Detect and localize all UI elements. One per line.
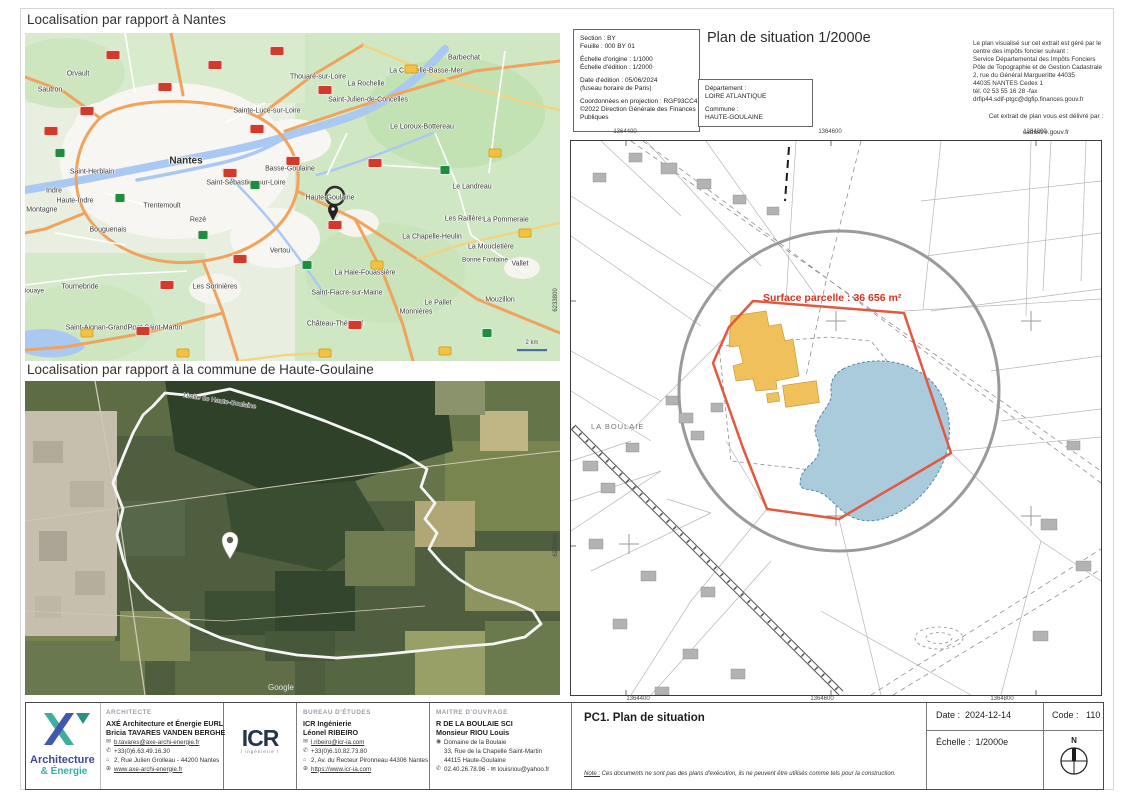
icr-logo: ICR / ingénierie / (226, 727, 294, 754)
plan-sheet: { "titles": { "nantes": "Localisation pa… (0, 0, 1123, 794)
text-line: (fuseau horaire de Paris) (580, 85, 693, 93)
date-row: Date : 2024-12-14 (936, 710, 1011, 720)
route-shield-icon (482, 328, 493, 338)
route-shield-icon (371, 261, 384, 270)
text-line: Département : (705, 85, 806, 93)
text-line: Le plan visualisé sur cet extrait est gé… (973, 40, 1119, 48)
contact-icon: ◉ (436, 739, 444, 745)
text-line: centre des impôts foncier suivant : (973, 48, 1119, 56)
contact-row: ✆+33(0)6.10.82.73.80 (303, 748, 427, 756)
route-shield-icon (250, 124, 265, 134)
route-shield-icon (80, 106, 95, 116)
commune-limit-dashes (785, 147, 789, 201)
route-shield-icon (319, 349, 332, 358)
nantes-map-title: Localisation par rapport à Nantes (27, 12, 226, 27)
text-line: Échelle d'origine : 1/1000 (580, 56, 693, 64)
route-shield-icon (519, 229, 532, 238)
bureau-heading: BUREAU D'ÉTUDES (303, 709, 427, 716)
axe-logo-line1: Architecture (30, 754, 98, 766)
contact-text: 33, Rue de la Chapelle Saint-Martin (444, 748, 542, 756)
route-shield-icon (136, 326, 151, 336)
route-shield-icon (328, 220, 343, 230)
text-line: tél. 02 53 55 16 28 -fax (973, 88, 1119, 96)
text-line: Commune : (705, 106, 806, 114)
text-line: drfip44.sdif-ptgc@dgfip.finances.gouv.fr (973, 96, 1119, 104)
code-label: Code : (1052, 710, 1079, 720)
contact-text: +33(0)6.63.49.16.30 (114, 748, 170, 756)
date-value: 2024-12-14 (965, 710, 1011, 720)
route-shield-icon (489, 149, 502, 158)
divider (926, 703, 927, 789)
contact-text: 2, Av. du Recteur Pironneau 44306 Nantes (311, 757, 428, 765)
text-line: Pôle de Topographie et de Gestion Cadast… (973, 64, 1119, 72)
coord-top-3: 1364800 (1023, 129, 1046, 135)
doc-note: Note : Ces documents ne sont pas des pla… (584, 771, 896, 777)
doc-title: PC1. Plan de situation (584, 712, 705, 724)
maitre-heading: MAITRE D'OUVRAGE (436, 709, 568, 716)
cadastre-map-graphic: Surface parcelle : 36 656 m² LA BOULAIE (571, 141, 1101, 695)
contact-text: 2, Rue Julien Grolleau - 44200 Nantes (114, 757, 219, 765)
nantes-map: OrvaultSautronThouaré-sur-LoireLa Rochel… (25, 33, 560, 361)
bureau-contacts: ✉l.ribeiro@icr-ia.com✆+33(0)6.10.82.73.8… (303, 739, 427, 774)
cadastre-notice: Le plan visualisé sur cet extrait est gé… (973, 40, 1119, 136)
architecte-heading: ARCHITECTE (106, 709, 221, 716)
route-shield-icon (55, 148, 66, 158)
contact-icon: ✆ (436, 766, 444, 772)
scale-label: Échelle : (936, 737, 971, 747)
architecte-contact-name: Bricia TAVARES VANDEN BERGHE (106, 728, 221, 737)
urban-area-left (25, 411, 117, 636)
text-line: 2, rue du Général Margueritte 44035 (973, 72, 1119, 80)
coord-left-2: 6233600 (553, 533, 559, 556)
contact-text: +33(0)6.10.82.73.80 (311, 748, 367, 756)
route-shield-icon (158, 82, 173, 92)
commune-info-box: Département :LOIRE ATLANTIQUECommune :HA… (698, 79, 813, 127)
text-line: Section : BY (580, 35, 693, 43)
north-arrow-icon: N (1056, 733, 1092, 788)
commune-map: Limite de Haute-Goulaine Google (25, 381, 560, 695)
maitre-contact-name: Monsieur RIOU Louis (436, 728, 568, 737)
contact-icon: ⌂ (303, 757, 311, 763)
text-line: ©2022 Direction Générale des Finances (580, 106, 693, 114)
contact-icon: ✆ (106, 748, 114, 754)
route-shield-icon (233, 254, 248, 264)
note-label: Note : (584, 771, 600, 777)
contact-icon: ⊕ (303, 766, 311, 772)
route-shield-icon (198, 230, 209, 240)
cadastre-info-box: Section : BYFeuille : 000 BY 01Échelle d… (573, 29, 700, 132)
contact-icon: ⊕ (106, 766, 114, 772)
map-attribution: Google (268, 683, 294, 692)
contact-row[interactable]: ⊕www.axe-archi-energie.fr (106, 766, 221, 774)
divider (100, 703, 101, 789)
route-shield-icon (270, 46, 285, 56)
axe-logo: Architecture & Énergie (30, 711, 98, 777)
plan-title: Plan de situation 1/2000e (707, 30, 871, 46)
code-value: 110 (1086, 710, 1100, 720)
contact-row: 33, Rue de la Chapelle Saint-Martin (436, 748, 568, 756)
text-line: Service Départemental des Impôts Foncier… (973, 56, 1119, 64)
architecte-company: AXÉ Architecture et Énergie EURL (106, 719, 221, 728)
contour-ellipse-inner (926, 633, 952, 644)
route-shield-icon (302, 260, 313, 270)
bureau-contact-name: Léonel RIBEIRO (303, 728, 427, 737)
route-shield-icon (106, 50, 121, 60)
bureau-cell: BUREAU D'ÉTUDES ICR Ingénierie Léonel RI… (303, 709, 427, 773)
route-shield-icon (81, 329, 94, 338)
coord-left-1: 6233800 (553, 288, 559, 311)
delivery-line: Cet extrait de plan vous est délivré par… (973, 113, 1119, 120)
axe-logo-line2: & Énergie (30, 766, 98, 777)
contact-text[interactable]: https://www.icr-ia.com (311, 766, 371, 774)
project-buildings (729, 311, 819, 407)
north-label: N (1071, 736, 1077, 745)
maitre-company: R DE LA BOULAIE SCI (436, 719, 568, 728)
text-line: HAUTE-GOULAINE (705, 114, 806, 122)
contact-row: ✆02.40.26.78.96 - ✉ louisriou@yahoo.fr (436, 766, 568, 774)
icr-logo-sub: / ingénierie / (226, 749, 294, 754)
contact-row: ◉Domaine de la Boulaie (436, 739, 568, 747)
contact-row[interactable]: ⊕https://www.icr-ia.com (303, 766, 427, 774)
route-shield-icon (368, 158, 383, 168)
contact-text[interactable]: www.axe-archi-energie.fr (114, 766, 182, 774)
route-shield-icon (318, 85, 333, 95)
contact-icon: ✉ (106, 739, 114, 745)
contact-row: 44115 Haute-Goulaine (436, 757, 568, 765)
text-line: Date d'édition : 05/06/2024 (580, 77, 693, 85)
axe-logo-glyph (30, 711, 94, 749)
text-line: Coordonnées en projection : RGF93CC47 (580, 98, 693, 106)
contact-text: Domaine de la Boulaie (444, 739, 506, 747)
coord-top-1: 1364400 (613, 129, 636, 135)
route-shield-icon (115, 193, 126, 203)
commune-map-title: Localisation par rapport à la commune de… (27, 362, 374, 377)
route-shield-icon (286, 156, 301, 166)
text-line: Publiques (580, 114, 693, 122)
la-boulaie-label: LA BOULAIE (591, 422, 644, 431)
contact-text: 02.40.26.78.96 - ✉ louisriou@yahoo.fr (444, 766, 549, 774)
contact-row: ⌂2, Av. du Recteur Pironneau 44306 Nante… (303, 757, 427, 765)
route-shield-icon (160, 280, 175, 290)
divider (571, 703, 572, 789)
icr-logo-text: ICR (226, 727, 294, 749)
architecte-cell: ARCHITECTE AXÉ Architecture et Énergie E… (106, 709, 221, 773)
divider (429, 703, 430, 789)
bureau-company: ICR Ingénierie (303, 719, 427, 728)
text-line: 44035 NANTES Cedex 1 (973, 80, 1119, 88)
contact-icon: ✆ (303, 748, 311, 754)
text-line: Feuille : 000 BY 01 (580, 43, 693, 51)
route-shield-icon (405, 65, 418, 74)
maitre-cell: MAITRE D'OUVRAGE R DE LA BOULAIE SCI Mon… (436, 709, 568, 773)
divider (296, 703, 297, 789)
surface-label: Surface parcelle : 36 656 m² (763, 292, 902, 304)
commune-map-graphic: Limite de Haute-Goulaine Google (25, 381, 560, 695)
contact-text: 44115 Haute-Goulaine (444, 757, 506, 765)
title-block: Architecture & Énergie ARCHITECTE AXÉ Ar… (25, 702, 1104, 790)
contact-row: ✆+33(0)6.63.49.16.30 (106, 748, 221, 756)
architecte-contacts: ✉b.tavares@axe-archi-energie.fr✆+33(0)6.… (106, 739, 221, 774)
route-shield-icon (177, 349, 190, 358)
note-text: Ces documents ne sont pas des plans d'ex… (600, 771, 896, 777)
divider (223, 703, 224, 789)
route-shield-icon (44, 126, 59, 136)
contact-row[interactable]: ✉b.tavares@axe-archi-energie.fr (106, 739, 221, 747)
contact-text[interactable]: l.ribeiro@icr-ia.com (311, 739, 364, 747)
cadastre-map: Surface parcelle : 36 656 m² LA BOULAIE (570, 140, 1102, 696)
route-shield-icon (250, 180, 261, 190)
notice-lines: Le plan visualisé sur cet extrait est gé… (973, 40, 1119, 104)
scale-row: Échelle : 1/2000e (936, 737, 1008, 747)
scale-value: 1/2000e (976, 737, 1009, 747)
route-shield-icon (223, 168, 238, 178)
contact-text[interactable]: b.tavares@axe-archi-energie.fr (114, 739, 199, 747)
text-line: LOIRE ATLANTIQUE (705, 93, 806, 101)
contact-row[interactable]: ✉l.ribeiro@icr-ia.com (303, 739, 427, 747)
contour-ellipse (915, 627, 963, 649)
maitre-contacts: ◉Domaine de la Boulaie33, Rue de la Chap… (436, 739, 568, 774)
contact-icon: ⌂ (106, 757, 114, 763)
route-shield-icon (208, 60, 223, 70)
coord-top-2: 1364600 (818, 129, 841, 135)
border-ticks (571, 141, 1036, 695)
contact-icon: ✉ (303, 739, 311, 745)
route-shield-icon (439, 347, 452, 356)
code-row: Code : 110 (1052, 710, 1100, 720)
date-label: Date : (936, 710, 960, 720)
divider (1043, 703, 1044, 789)
railway (571, 425, 843, 695)
contact-row: ⌂2, Rue Julien Grolleau - 44200 Nantes (106, 757, 221, 765)
route-shield-icon (440, 165, 451, 175)
text-line: Échelle d'édition : 1/2000 (580, 64, 693, 72)
route-shield-icon (348, 320, 363, 330)
divider-horizontal (926, 730, 1103, 731)
nantes-map-route-shields (25, 33, 560, 361)
